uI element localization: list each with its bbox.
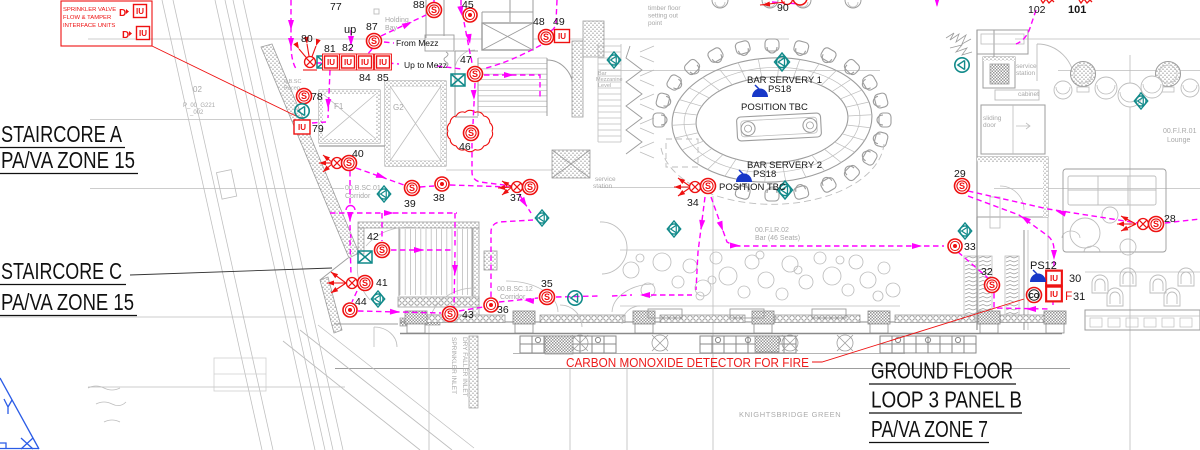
svg-text:setting out: setting out	[648, 13, 678, 20]
svg-text:IU: IU	[136, 7, 144, 16]
svg-text:STAIRCORE A: STAIRCORE A	[1, 121, 123, 147]
svg-text:00.F.LR.02: 00.F.LR.02	[755, 227, 789, 234]
svg-text:80: 80	[301, 33, 313, 45]
svg-text:S: S	[431, 5, 437, 15]
svg-text:S: S	[705, 181, 711, 191]
svg-text:timber floor: timber floor	[648, 5, 681, 12]
svg-text:IU: IU	[344, 58, 352, 67]
svg-text:_002: _002	[189, 110, 204, 116]
svg-text:station: station	[1016, 70, 1036, 77]
svg-text:39: 39	[404, 198, 416, 210]
svg-text:SPRINKLER VALVE: SPRINKLER VALVE	[63, 7, 116, 13]
svg-text:station: station	[593, 183, 613, 190]
svg-text:29: 29	[954, 168, 966, 180]
svg-text:S: S	[527, 182, 533, 192]
svg-text:36: 36	[497, 304, 509, 316]
svg-text:GROUND FLOOR: GROUND FLOOR	[871, 358, 1013, 384]
svg-text:service: service	[1016, 63, 1037, 70]
svg-text:33: 33	[964, 241, 976, 253]
svg-text:PA/VA ZONE 7: PA/VA ZONE 7	[871, 416, 988, 442]
svg-text:P_00_G221: P_00_G221	[183, 103, 216, 109]
svg-text:41: 41	[376, 277, 388, 289]
svg-text:88: 88	[413, 0, 425, 11]
svg-text:CO: CO	[1029, 293, 1040, 300]
svg-text:IU: IU	[361, 58, 369, 67]
svg-text:47: 47	[460, 54, 472, 66]
svg-text:S: S	[959, 181, 965, 191]
svg-text:90: 90	[777, 2, 789, 14]
svg-text:43: 43	[462, 309, 474, 321]
svg-text:up: up	[344, 24, 356, 36]
svg-text:cabinet: cabinet	[1018, 91, 1039, 98]
svg-text:KNIGHTSBRIDGE GREEN: KNIGHTSBRIDGE GREEN	[739, 410, 841, 419]
svg-text:From Mezz: From Mezz	[396, 38, 439, 48]
svg-text:PS18: PS18	[753, 169, 776, 180]
svg-text:D: D	[122, 30, 129, 41]
svg-text:IU: IU	[1050, 290, 1058, 299]
svg-text:S: S	[371, 36, 377, 46]
svg-text:Up to Mezz: Up to Mezz	[404, 60, 447, 70]
svg-text:IU: IU	[298, 123, 306, 132]
svg-text:S: S	[447, 309, 453, 319]
svg-text:S: S	[543, 32, 549, 42]
svg-text:00.B.SC.12: 00.B.SC.12	[497, 286, 533, 293]
svg-text:PS18: PS18	[768, 84, 791, 95]
svg-text:Corridor: Corridor	[345, 193, 371, 200]
svg-text:48: 48	[533, 16, 545, 28]
svg-text:DRY FALLER INLET: DRY FALLER INLET	[461, 337, 468, 397]
svg-text:IU: IU	[139, 29, 147, 38]
svg-text:Level: Level	[598, 83, 611, 89]
svg-text:44: 44	[355, 296, 367, 308]
svg-text:S: S	[379, 245, 385, 255]
svg-text:S: S	[409, 183, 415, 193]
svg-text:FLOW & TAMPER: FLOW & TAMPER	[63, 15, 111, 21]
svg-text:point: point	[648, 20, 662, 27]
svg-text:STAIRCORE C: STAIRCORE C	[1, 258, 122, 284]
svg-text:S: S	[989, 280, 995, 290]
svg-text:78: 78	[311, 91, 323, 103]
svg-text:49: 49	[553, 16, 565, 28]
svg-text:30: 30	[1069, 273, 1081, 285]
svg-text:IU: IU	[379, 58, 387, 67]
svg-text:S: S	[544, 292, 550, 302]
svg-text:F1: F1	[334, 102, 344, 111]
svg-text:102: 102	[1028, 4, 1046, 16]
svg-text:31: 31	[1073, 291, 1085, 303]
svg-text:S: S	[472, 69, 478, 79]
svg-text:Lounge: Lounge	[1167, 137, 1190, 144]
svg-text:46: 46	[459, 141, 471, 153]
svg-text:79: 79	[312, 123, 324, 135]
svg-text:service: service	[595, 176, 616, 183]
svg-text:INTERFACE UNITS: INTERFACE UNITS	[63, 23, 115, 29]
svg-text:28: 28	[1164, 213, 1176, 225]
svg-text:101: 101	[1068, 4, 1086, 16]
svg-text:S: S	[362, 278, 368, 288]
svg-text:SPRINKLER INLET: SPRINKLER INLET	[450, 337, 457, 394]
svg-text:IU: IU	[1050, 274, 1058, 283]
svg-text:37: 37	[510, 192, 522, 204]
svg-text:PA/VA ZONE 15: PA/VA ZONE 15	[1, 147, 135, 173]
svg-text:40: 40	[352, 148, 364, 160]
svg-text:42: 42	[367, 231, 379, 243]
svg-text:84: 84	[359, 72, 371, 84]
svg-text:Recep: Recep	[284, 86, 300, 92]
svg-text:77: 77	[330, 1, 342, 13]
svg-text:G2: G2	[393, 103, 404, 112]
svg-text:F: F	[1065, 289, 1072, 303]
svg-text:02: 02	[193, 85, 202, 94]
svg-text:35: 35	[541, 278, 553, 290]
svg-text:82: 82	[342, 42, 354, 54]
svg-text:sliding: sliding	[983, 115, 1002, 122]
svg-text:S: S	[1153, 219, 1159, 229]
svg-text:87: 87	[366, 21, 378, 33]
svg-text:38: 38	[433, 192, 445, 204]
svg-text:IU: IU	[558, 32, 566, 41]
svg-text:door: door	[983, 122, 997, 129]
svg-text:0.B.SC: 0.B.SC	[284, 79, 301, 85]
svg-text:S: S	[301, 91, 307, 101]
svg-text:PA/VA ZONE 15: PA/VA ZONE 15	[1, 289, 134, 315]
svg-text:D: D	[119, 8, 126, 19]
svg-text:CARBON MONOXIDE DETECTOR FOR F: CARBON MONOXIDE DETECTOR FOR FIRE	[566, 355, 809, 370]
svg-text:32: 32	[981, 266, 993, 278]
svg-text:LOOP 3 PANEL B: LOOP 3 PANEL B	[871, 387, 1022, 413]
svg-text:PS12: PS12	[1030, 260, 1057, 272]
svg-text:S: S	[468, 128, 474, 138]
svg-text:85: 85	[377, 72, 389, 84]
svg-text:45: 45	[462, 0, 474, 11]
svg-text:IU: IU	[327, 58, 335, 67]
svg-text:Bar (46 Seats): Bar (46 Seats)	[755, 235, 800, 242]
svg-text:81: 81	[324, 43, 336, 55]
svg-text:00.F.l.R.01: 00.F.l.R.01	[1163, 128, 1197, 135]
svg-text:34: 34	[687, 197, 699, 209]
svg-text:POSITION TBC: POSITION TBC	[741, 102, 808, 113]
svg-text:Holding: Holding	[385, 17, 409, 24]
svg-text:POSITION TBC: POSITION TBC	[719, 182, 786, 193]
